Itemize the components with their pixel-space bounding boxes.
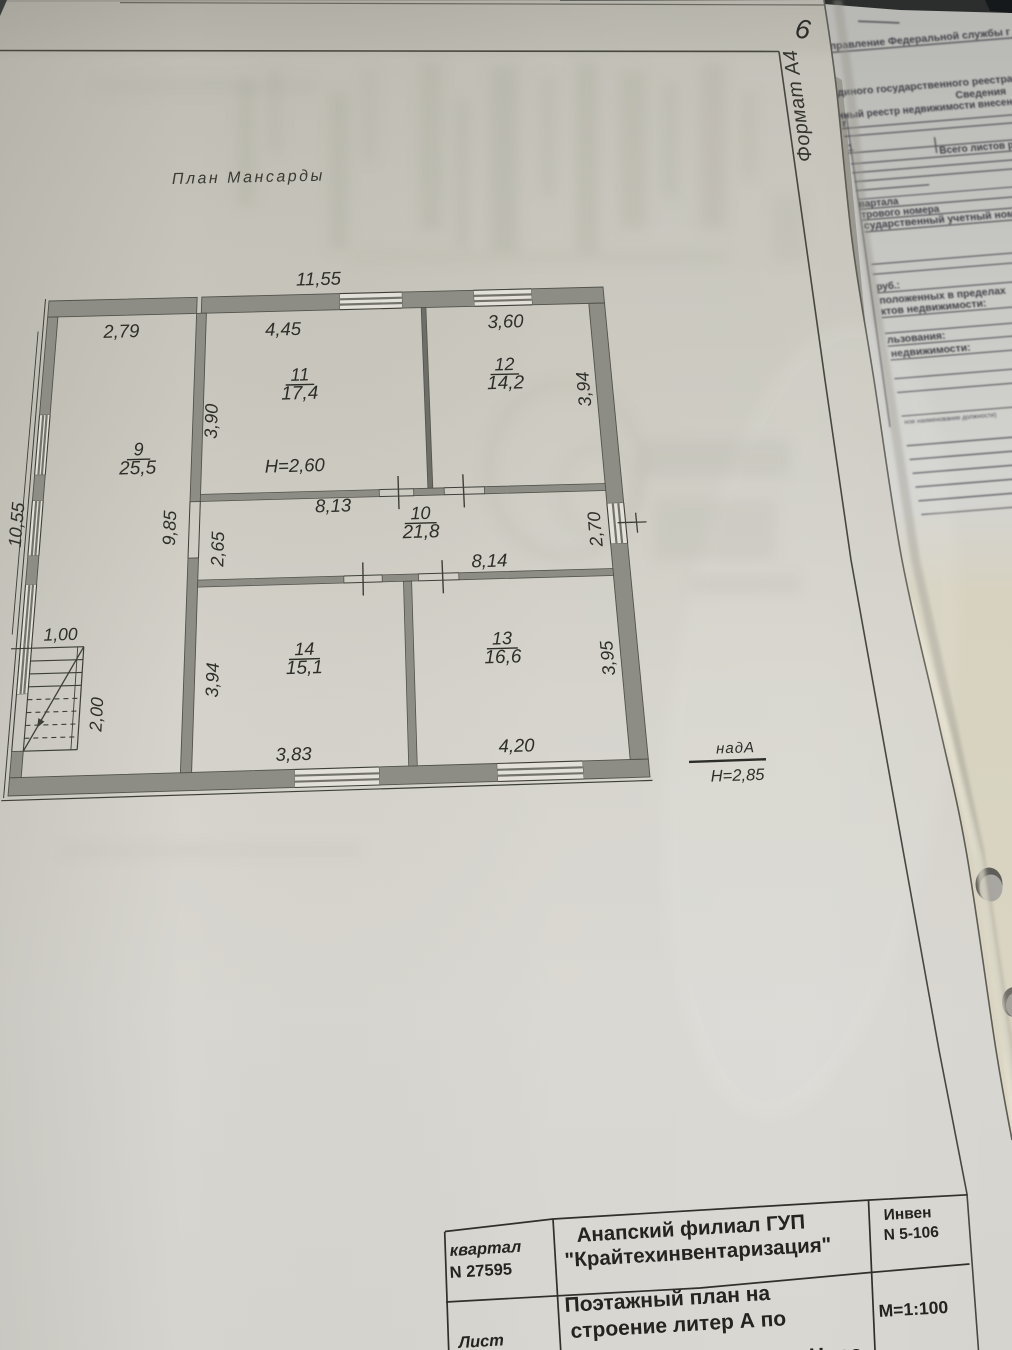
svg-text:3,94: 3,94 xyxy=(202,662,223,698)
svg-text:9,85: 9,85 xyxy=(159,509,180,546)
svg-text:16,6: 16,6 xyxy=(484,646,522,668)
svg-text:2,79: 2,79 xyxy=(102,320,140,342)
svg-text:13: 13 xyxy=(492,628,513,649)
svg-text:8,14: 8,14 xyxy=(471,549,508,571)
svg-text:3,95: 3,95 xyxy=(596,639,619,677)
svg-text:Н=2,60: Н=2,60 xyxy=(264,454,325,477)
svg-text:2,00: 2,00 xyxy=(85,697,107,733)
svg-text:Инвен: Инвен xyxy=(883,1204,932,1224)
svg-text:9: 9 xyxy=(133,439,144,459)
svg-text:3,90: 3,90 xyxy=(201,404,222,440)
svg-text:N 5-106: N 5-106 xyxy=(883,1224,939,1244)
svg-text:14: 14 xyxy=(294,639,315,660)
svg-text:М=1:100: М=1:100 xyxy=(878,1297,949,1321)
svg-text:Н=2,85: Н=2,85 xyxy=(710,766,765,786)
svg-text:17,4: 17,4 xyxy=(281,383,319,405)
svg-text:8,13: 8,13 xyxy=(315,494,352,516)
svg-text:10,55: 10,55 xyxy=(5,501,29,549)
svg-text:11: 11 xyxy=(290,364,309,384)
svg-text:4,20: 4,20 xyxy=(498,734,535,756)
svg-text:надА: надА xyxy=(716,739,755,757)
svg-text:15,1: 15,1 xyxy=(286,657,324,679)
svg-text:N 27595: N 27595 xyxy=(449,1260,512,1282)
svg-text:2,70: 2,70 xyxy=(584,511,607,549)
svg-text:3,83: 3,83 xyxy=(275,743,312,765)
svg-text:Лист: Лист xyxy=(457,1331,504,1350)
svg-text:25,5: 25,5 xyxy=(118,458,157,480)
svg-text:2,65: 2,65 xyxy=(207,530,228,568)
svg-text:11,55: 11,55 xyxy=(296,268,342,290)
svg-text:21,8: 21,8 xyxy=(401,521,440,543)
svg-text:1,00: 1,00 xyxy=(43,624,78,645)
svg-text:4,45: 4,45 xyxy=(265,318,302,340)
svg-text:10: 10 xyxy=(410,503,431,524)
svg-text:14,2: 14,2 xyxy=(487,372,525,394)
svg-text:12: 12 xyxy=(494,354,515,375)
svg-text:3,60: 3,60 xyxy=(487,310,524,332)
svg-text:3,94: 3,94 xyxy=(572,371,595,408)
svg-text:План Мансарды: План Мансарды xyxy=(172,168,325,188)
